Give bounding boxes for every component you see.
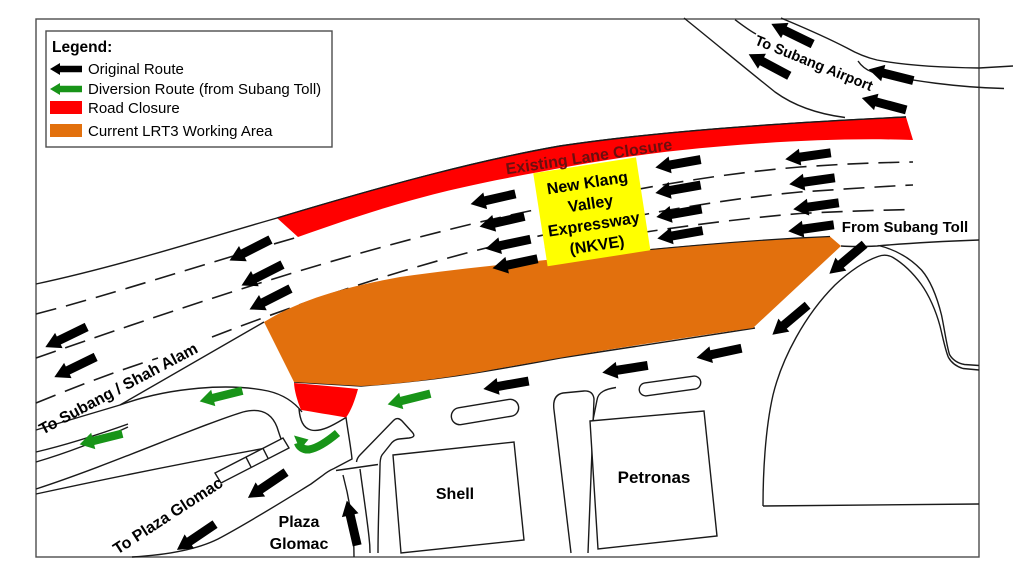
svg-text:Road Closure: Road Closure bbox=[88, 100, 180, 117]
svg-text:From Subang Toll: From Subang Toll bbox=[842, 219, 968, 236]
svg-text:Glomac: Glomac bbox=[270, 536, 329, 553]
svg-text:Shell: Shell bbox=[436, 486, 474, 503]
svg-text:Plaza: Plaza bbox=[279, 514, 320, 531]
svg-text:Legend:: Legend: bbox=[52, 39, 112, 56]
svg-text:Current LRT3 Working Area: Current LRT3 Working Area bbox=[88, 123, 273, 140]
svg-text:Original Route: Original Route bbox=[88, 61, 184, 78]
svg-text:Petronas: Petronas bbox=[618, 468, 691, 487]
svg-text:Diversion Route (from Subang T: Diversion Route (from Subang Toll) bbox=[88, 81, 321, 98]
